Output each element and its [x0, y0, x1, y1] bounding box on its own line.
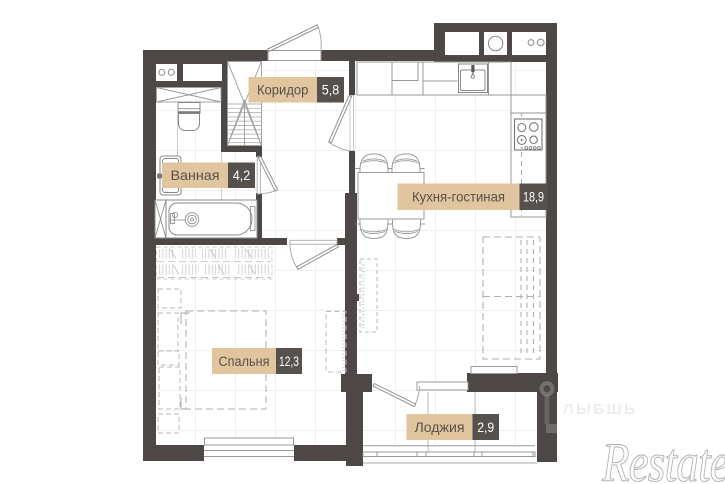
svg-text:Спальня: Спальня [219, 353, 270, 369]
svg-text:ЛЫБШЬ: ЛЫБШЬ [563, 401, 637, 418]
svg-text:Коридор: Коридор [257, 82, 309, 98]
svg-text:18,9: 18,9 [523, 189, 544, 205]
svg-text:2,9: 2,9 [477, 419, 494, 435]
svg-text:Кухня-гостиная: Кухня-гостиная [412, 189, 505, 205]
svg-text:Ванная: Ванная [171, 167, 220, 183]
svg-text:4,2: 4,2 [233, 167, 251, 183]
svg-text:12,3: 12,3 [279, 353, 299, 369]
svg-text:Лоджия: Лоджия [415, 419, 465, 435]
svg-text:Restate: Restate [601, 432, 725, 484]
svg-text:5,8: 5,8 [322, 82, 340, 98]
